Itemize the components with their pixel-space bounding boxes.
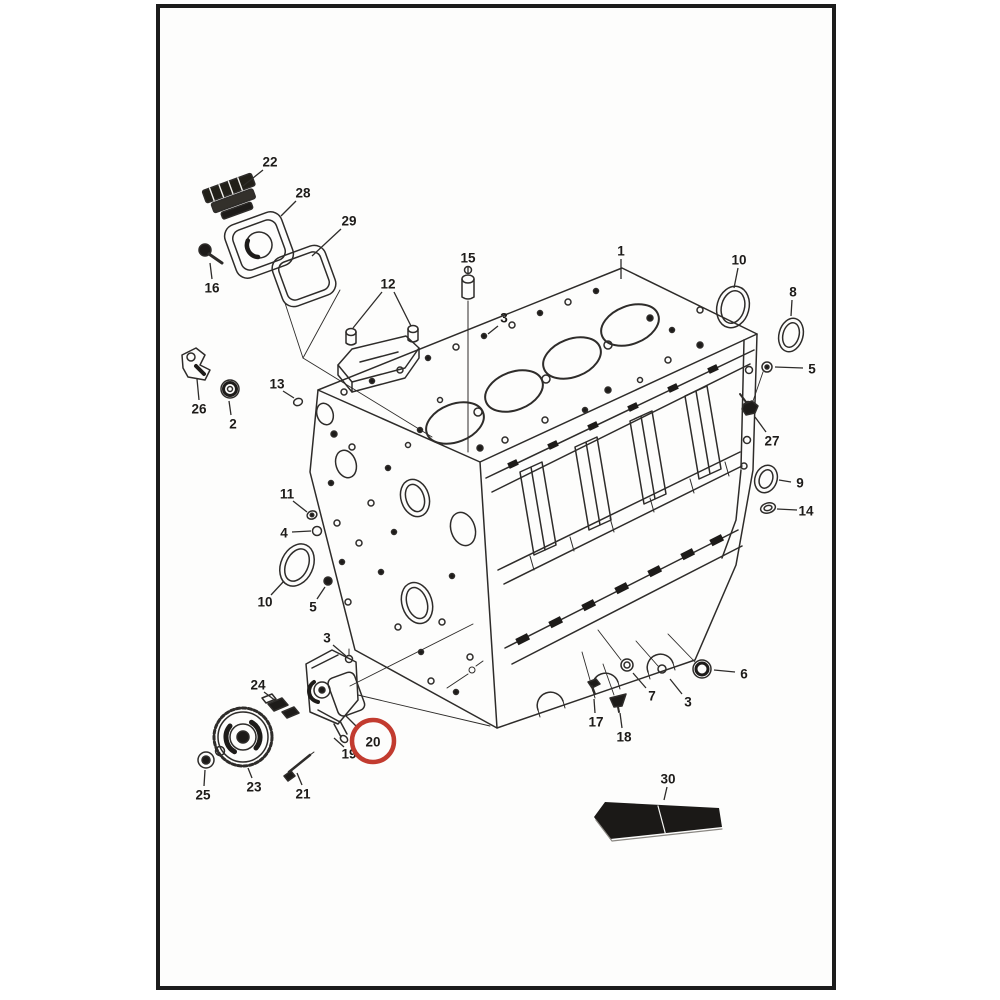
callout-24-label: 24 [250, 678, 266, 693]
callout-10-label: 10 [731, 253, 746, 268]
callout-12-label: 12 [380, 277, 395, 292]
page-frame [158, 6, 834, 988]
callout-27-label: 27 [764, 434, 779, 449]
callout-9-label: 9 [796, 476, 804, 491]
scanned-parts-diagram-page: 2228291626213121511085279141141053324192… [0, 0, 1000, 1000]
callout-13-label: 13 [269, 377, 285, 392]
callout-8-label: 8 [789, 285, 797, 300]
callout-3-label: 3 [500, 311, 508, 326]
callout-22-label: 22 [262, 155, 277, 170]
callout-2-label: 2 [229, 417, 237, 432]
callout-5-label: 5 [808, 362, 816, 377]
callout-26-label: 26 [191, 402, 207, 417]
callout-25-label: 25 [195, 788, 211, 803]
callout-30-label: 30 [660, 772, 675, 787]
callout-6-label: 6 [740, 667, 748, 682]
callout-23-label: 23 [246, 780, 262, 795]
callout-3-label: 3 [684, 695, 692, 710]
callout-28-label: 28 [295, 186, 311, 201]
callout-11-label: 11 [280, 487, 295, 502]
callout-7-label: 7 [648, 689, 656, 704]
callout-20-label: 20 [365, 735, 380, 750]
callout-14-label: 14 [798, 504, 814, 519]
diagram-svg: 2228291626213121511085279141141053324192… [0, 0, 1000, 1000]
callout-16-label: 16 [204, 281, 220, 296]
callout-21-label: 21 [295, 787, 311, 802]
callout-17-label: 17 [588, 715, 603, 730]
callout-4-label: 4 [280, 526, 288, 541]
callout-5-label: 5 [309, 600, 317, 615]
callout-1-label: 1 [617, 244, 625, 259]
callout-18-label: 18 [616, 730, 632, 745]
callout-3-label: 3 [323, 631, 331, 646]
callout-15-label: 15 [460, 251, 476, 266]
callout-10-label: 10 [257, 595, 272, 610]
callout-29-label: 29 [341, 214, 356, 229]
